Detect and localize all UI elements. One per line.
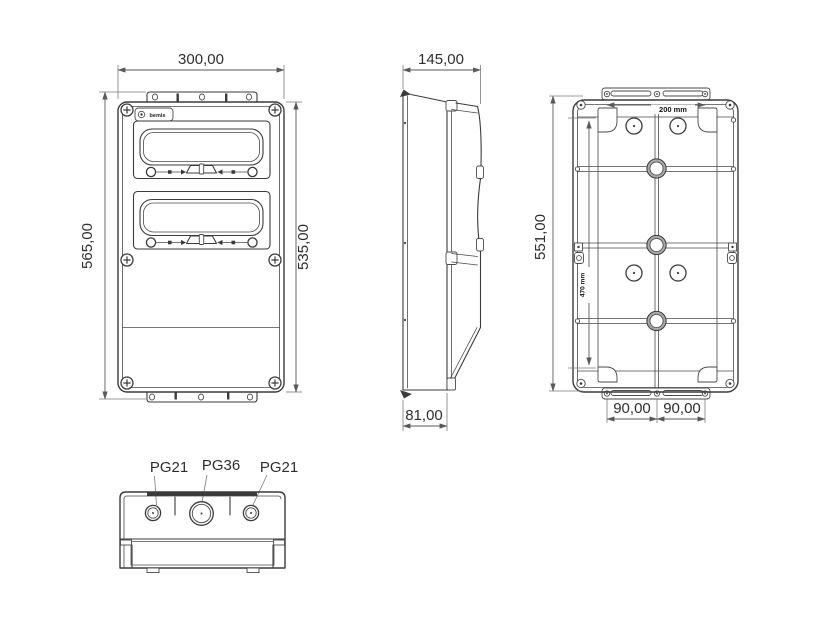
window-latch-tab-1 <box>477 166 484 179</box>
lid-foot <box>147 568 159 573</box>
screw-icon <box>121 104 133 116</box>
screw-icon <box>121 377 133 389</box>
lid-corner-bracket <box>274 540 285 545</box>
dim-front-height-overall-text: 565,00 <box>79 223 96 269</box>
technical-drawing-page: bemis 300,00 565,00 535,00 <box>0 0 825 625</box>
gland-label-left: PG21 <box>150 459 188 476</box>
dim-rear-bottom-left-text: 90,00 <box>613 400 651 417</box>
dim-rear-fixing-width: 200 mm <box>607 105 705 115</box>
lid-corner-bracket <box>121 540 132 545</box>
dim-front-height-body: 535,00 <box>286 102 312 392</box>
dim-front-width-text: 300,00 <box>178 51 224 68</box>
rear-top-fixing-flange <box>602 88 710 100</box>
dim-rear-fixing-width-text: 200 mm <box>659 105 687 114</box>
dim-side-depth-overall: 145,00 <box>403 51 481 104</box>
screw-icon <box>269 254 281 266</box>
dim-rear-bottom-spacing: 90,00 90,00 <box>607 399 705 423</box>
side-view: 145,00 81,00 <box>400 51 484 431</box>
knockout-small <box>670 265 686 281</box>
front-enclosure-inner-edge <box>123 107 280 388</box>
rear-corner-screw <box>577 101 585 109</box>
knockout-large <box>647 236 666 255</box>
dim-front-height-body-text: 535,00 <box>295 224 312 270</box>
gland-knockout-pg21-left <box>145 505 160 520</box>
side-back-plate <box>400 90 447 399</box>
knockout-small <box>626 265 642 281</box>
dim-rear-bottom-right-text: 90,00 <box>663 400 701 417</box>
knockout-small <box>670 118 686 134</box>
window-latch-tab-2 <box>477 239 484 252</box>
screw-icon <box>269 377 281 389</box>
din-window-2 <box>134 192 271 250</box>
front-view: bemis 300,00 565,00 535,00 <box>79 51 312 402</box>
gland-label-center: PG36 <box>202 457 240 474</box>
screw-icon <box>121 254 133 266</box>
dim-rear-fixing-height-text: 470 mm <box>580 273 587 297</box>
gland-knockout-pg21-right <box>243 505 258 520</box>
dim-rear-height-text: 551,00 <box>532 214 549 260</box>
screw-icon <box>269 104 281 116</box>
lid-foot <box>247 568 259 573</box>
rear-cable-knockouts <box>626 118 686 331</box>
knockout-large <box>647 312 666 331</box>
technical-drawing-canvas: bemis 300,00 565,00 535,00 <box>0 0 825 625</box>
rear-corner-screw <box>726 379 734 387</box>
gland-knockout-pg36 <box>190 502 214 526</box>
brand-logo: bemis <box>135 108 173 121</box>
brand-logo-text: bemis <box>150 113 166 119</box>
front-bottom-mounting-flange <box>147 392 257 403</box>
rear-view: 200 mm 470 mm 551,00 90,00 90,00 <box>532 88 738 423</box>
rear-corner-screw <box>726 101 734 109</box>
bottom-view: PG21 PG36 PG21 <box>120 457 298 573</box>
gland-leader-lines <box>155 475 268 505</box>
front-top-mounting-flange <box>147 92 257 102</box>
knockout-small <box>626 118 642 134</box>
dim-side-depth-base: 81,00 <box>403 393 447 431</box>
bottom-flange-edge <box>147 493 257 497</box>
rear-corner-screw <box>577 379 585 387</box>
gland-label-right: PG21 <box>260 459 298 476</box>
dim-side-depth-base-text: 81,00 <box>405 407 443 424</box>
dim-side-depth-overall-text: 145,00 <box>418 51 464 68</box>
rear-bottom-fixing-flange <box>602 388 710 399</box>
front-cover-screws <box>121 104 281 389</box>
din-window-1 <box>134 121 271 179</box>
dim-front-height-overall: 565,00 <box>79 92 146 399</box>
knockout-large <box>647 159 666 178</box>
